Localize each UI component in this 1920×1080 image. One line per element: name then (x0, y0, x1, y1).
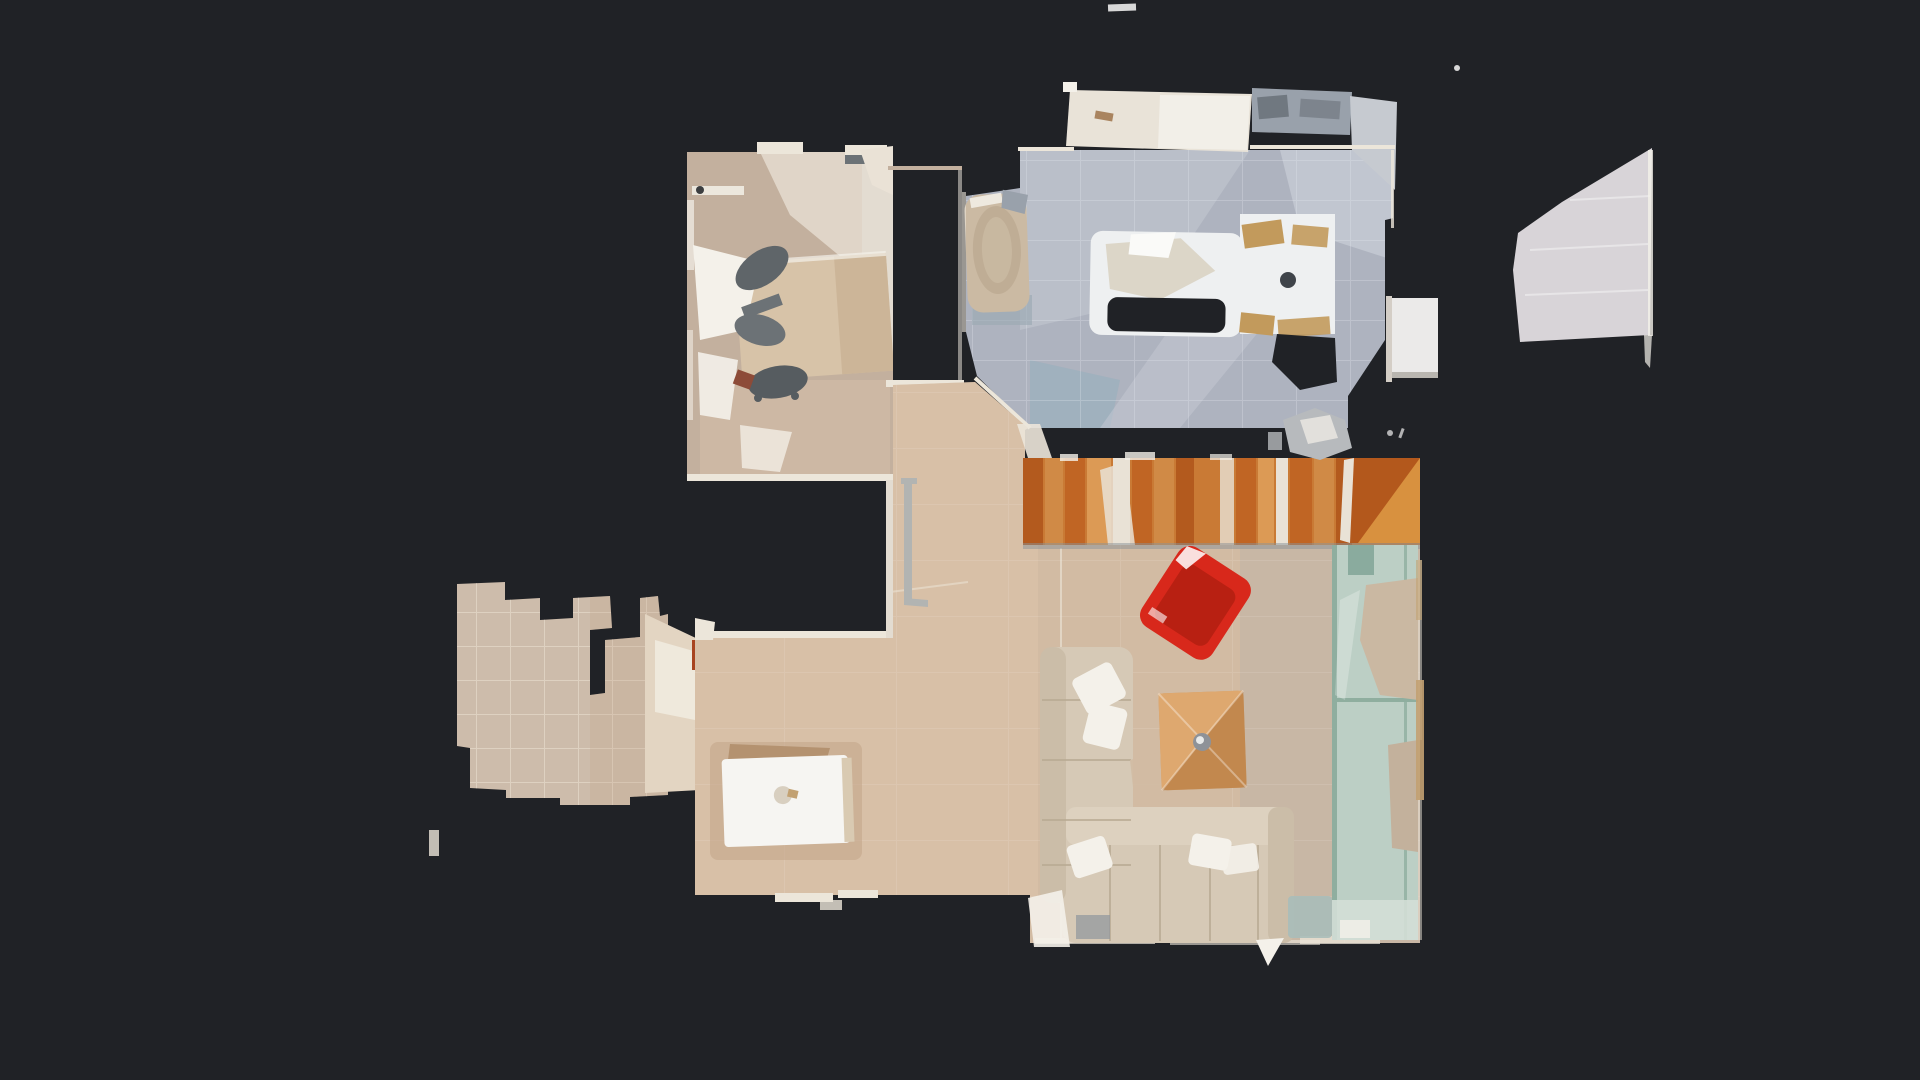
wall-line (1391, 150, 1394, 228)
glass-white-bit (1340, 920, 1370, 938)
glass-edge (1332, 545, 1337, 940)
baseboard (838, 890, 878, 898)
tub-crumple-bright (1128, 231, 1175, 258)
stair-slat (1023, 458, 1043, 545)
bathtub (964, 189, 1032, 313)
tub-dark-hole (1107, 297, 1226, 333)
stair-slat (1314, 458, 1334, 545)
counter-tab (1063, 82, 1077, 92)
wall-line (962, 192, 966, 332)
sofa-scan-gap (1130, 752, 1165, 805)
sink-dark (1299, 99, 1340, 120)
stair-slat (1176, 458, 1194, 545)
void-right-wall (886, 480, 893, 638)
wall-sliver (686, 330, 693, 420)
balcony-edge-sliver (1648, 150, 1653, 336)
stair-gap (1220, 458, 1234, 545)
dining-set (710, 742, 862, 860)
floorplan-svg (0, 0, 1920, 1080)
floorplan-canvas (0, 0, 1920, 1080)
sofa-shadow (1076, 915, 1110, 939)
wall-line (1018, 147, 1074, 151)
stair-cap (1210, 454, 1232, 460)
sofa-end-grey (1288, 896, 1332, 938)
wall-sliver (686, 200, 694, 270)
wall-line (1250, 145, 1395, 149)
shower-tub (1089, 231, 1243, 338)
stair-slat (1196, 458, 1218, 545)
stair-slat (1065, 458, 1085, 545)
terrace-wall-fragment (429, 830, 439, 856)
wall-tan-sliver (1416, 680, 1424, 800)
connector-door-panel (655, 640, 697, 720)
wood-corner (1277, 316, 1330, 338)
stair-slat (1290, 458, 1312, 545)
glass-partition (1332, 545, 1424, 940)
stair-slat (1045, 458, 1063, 545)
stair-slat (1132, 458, 1152, 545)
chair-wheel (754, 394, 762, 402)
void-top-edge (888, 166, 962, 170)
void-bottom-wall (695, 631, 893, 638)
glass-scan-hole (1388, 740, 1418, 852)
stair-slat (1236, 458, 1256, 545)
coffee-table (1158, 691, 1246, 791)
speck (1454, 65, 1460, 71)
door-panel (1392, 298, 1438, 378)
washing-machine (1239, 214, 1335, 338)
door-frame (1386, 296, 1392, 382)
wall-tan-sliver (1416, 560, 1422, 620)
speck (1108, 4, 1136, 12)
bedroom-bottom-wall (687, 474, 893, 481)
plant-blob-small (1268, 432, 1282, 450)
speck (1387, 430, 1393, 436)
throw-pillow (1220, 843, 1260, 876)
glass-dark-piece (1348, 545, 1374, 575)
vanity-counter-bright (1158, 95, 1250, 150)
bathroom-door (1386, 296, 1438, 382)
baseboard (820, 900, 842, 910)
chair-wheel (791, 392, 799, 400)
railing-bar (904, 481, 912, 603)
machine-knob (1280, 272, 1296, 288)
sink-dark (1257, 95, 1289, 120)
stair-cap (1060, 454, 1078, 461)
door-bottom-edge (1392, 372, 1438, 378)
void-right-edge (958, 170, 962, 380)
wood-corner (1239, 312, 1275, 335)
stair-cap (1125, 452, 1155, 460)
stair-slat (1258, 458, 1274, 545)
stair-gap (1276, 458, 1288, 545)
wood-corner (1291, 224, 1329, 247)
pole-finial (696, 186, 704, 194)
stair-slat (1154, 458, 1174, 545)
right-wall-line (1418, 800, 1422, 940)
wall-fragment (757, 142, 803, 154)
room-bedroom-office[interactable] (686, 142, 894, 480)
desk-top-shaded (834, 253, 894, 374)
